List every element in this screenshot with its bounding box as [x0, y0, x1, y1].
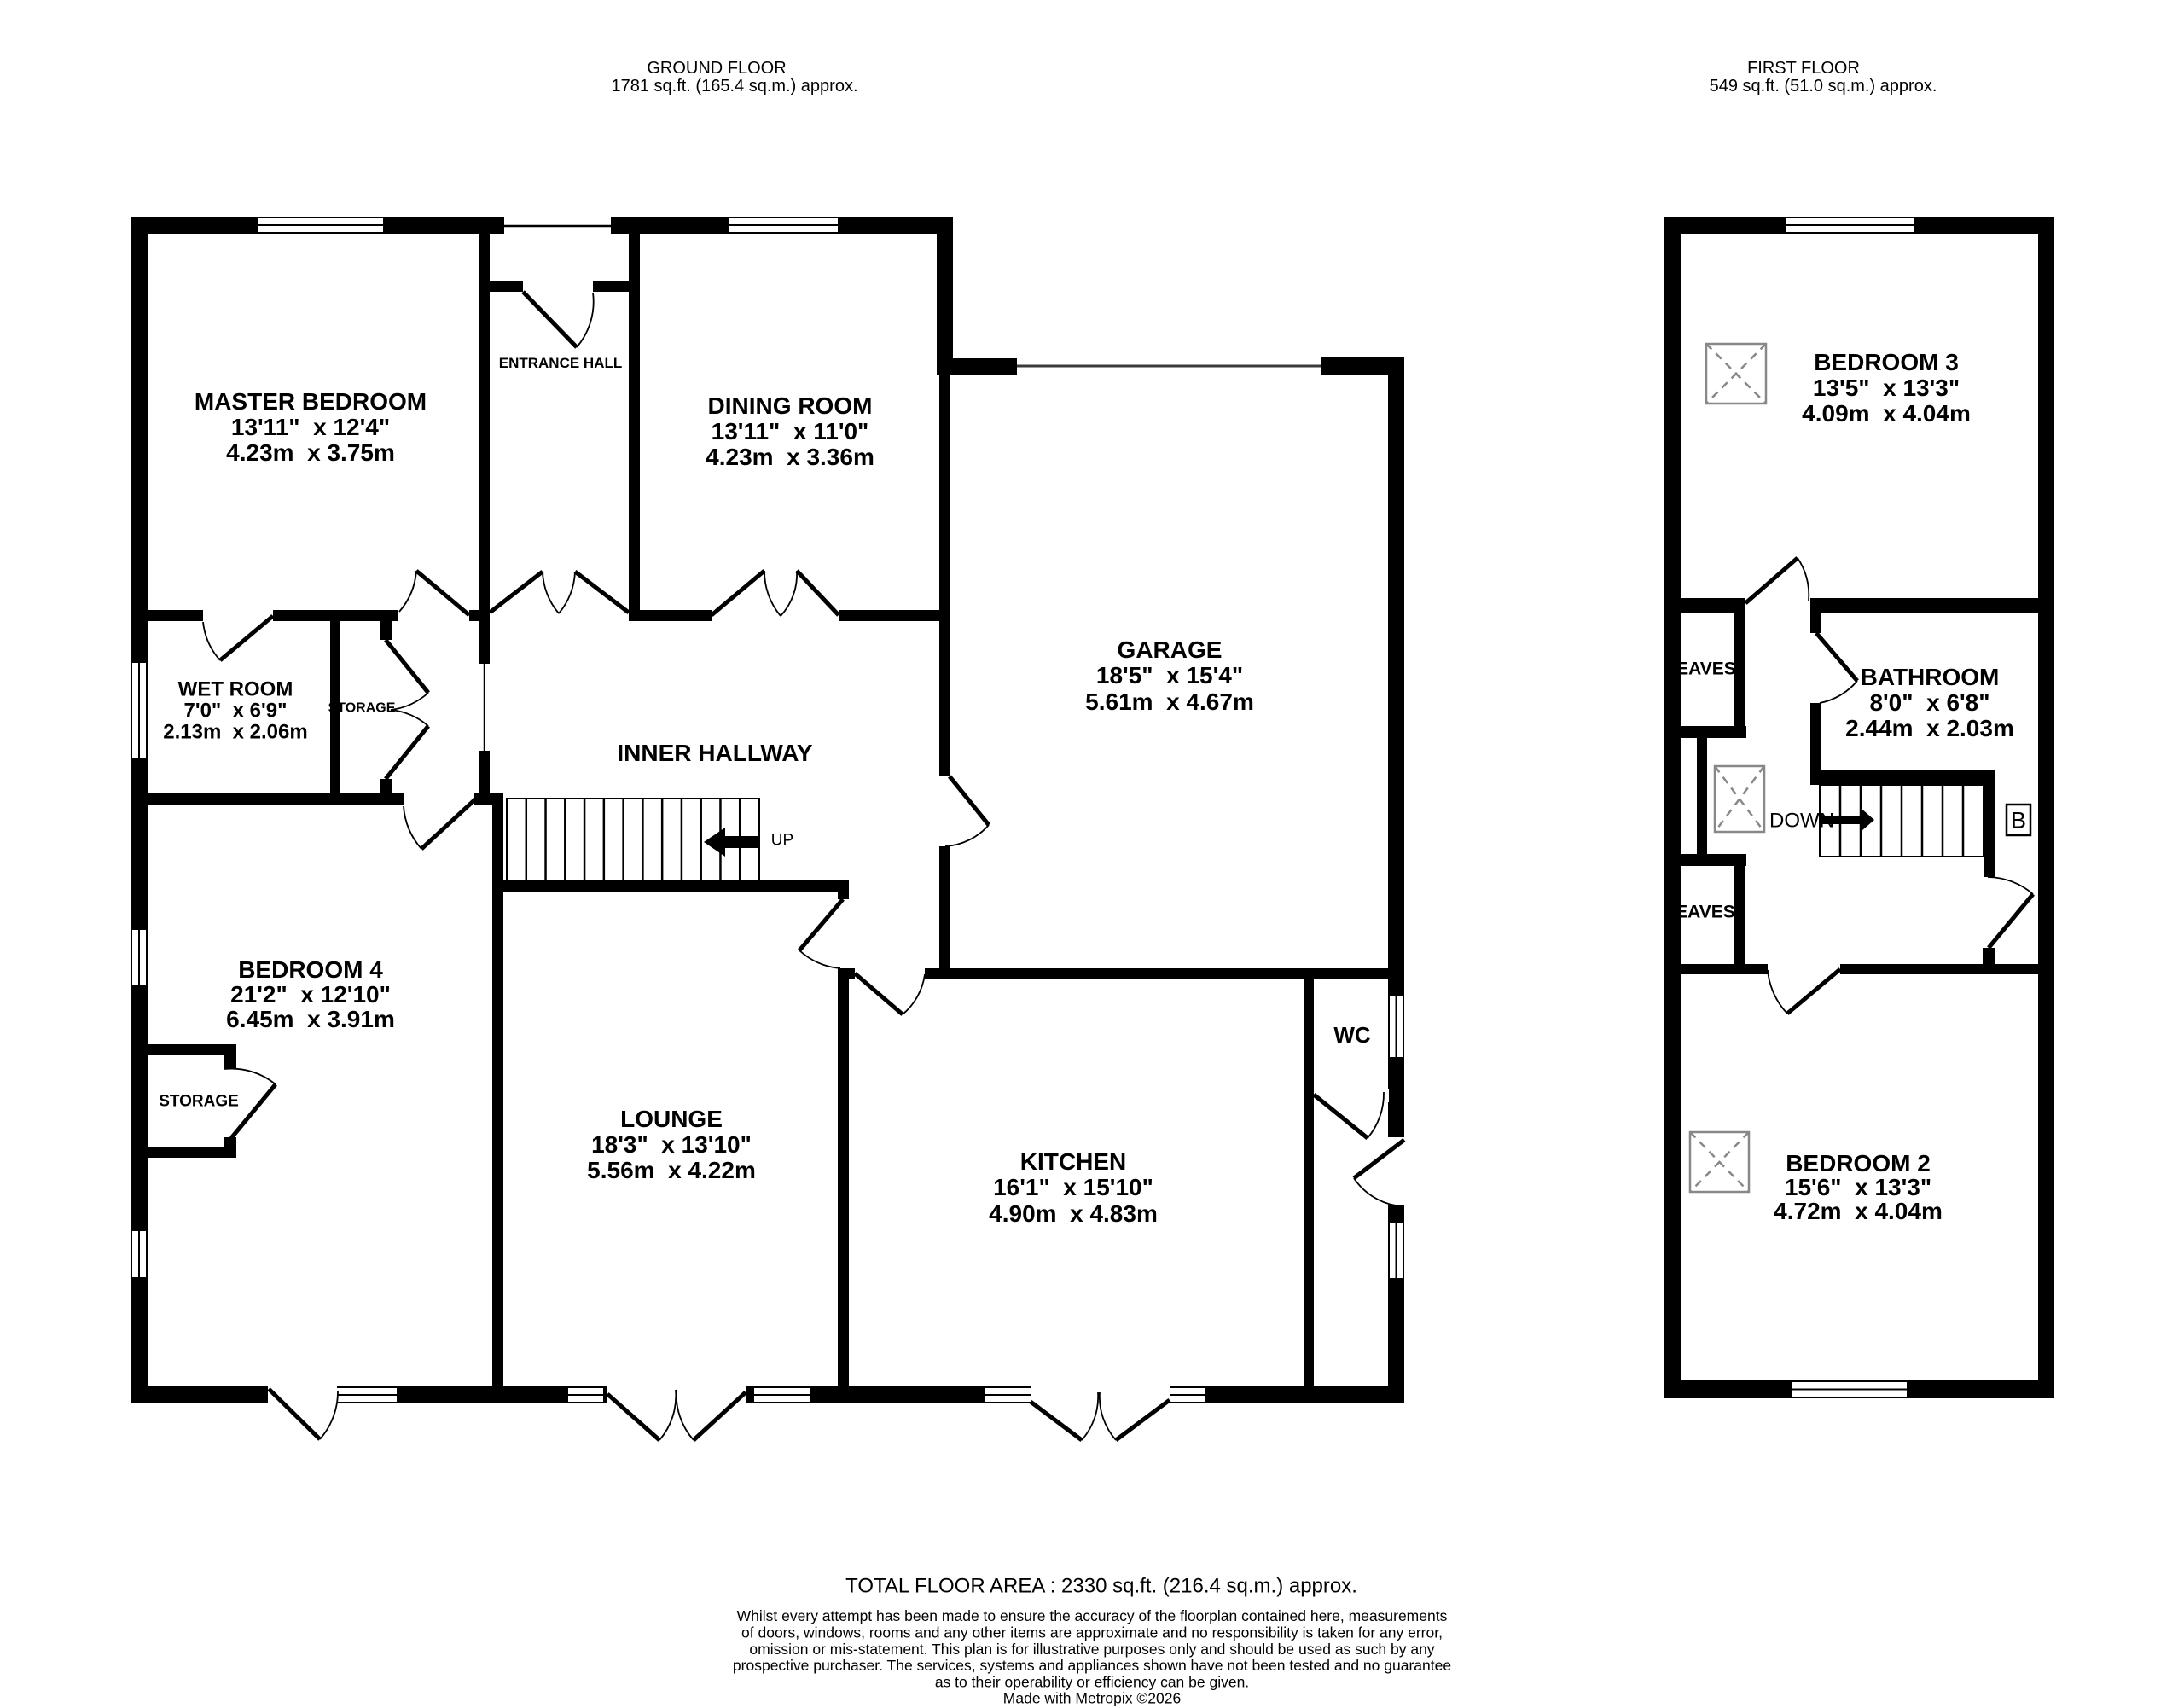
- svg-text:2.13m x 2.06m: 2.13m x 2.06m: [163, 721, 307, 744]
- svg-text:7'0" x 6'9": 7'0" x 6'9": [184, 700, 288, 723]
- svg-text:18'3" x 13'10": 18'3" x 13'10": [591, 1131, 752, 1158]
- svg-text:UP: UP: [771, 832, 793, 850]
- svg-text:EAVES: EAVES: [1676, 902, 1735, 921]
- svg-text:13'11" x 11'0": 13'11" x 11'0": [712, 418, 869, 444]
- svg-text:DINING ROOM: DINING ROOM: [708, 392, 873, 419]
- svg-text:B: B: [2011, 808, 2026, 834]
- svg-text:INNER HALLWAY: INNER HALLWAY: [617, 740, 813, 766]
- svg-text:ENTRANCE HALL: ENTRANCE HALL: [499, 355, 623, 371]
- svg-text:2.44m x 2.03m: 2.44m x 2.03m: [1845, 715, 2014, 741]
- svg-text:TOTAL FLOOR AREA : 2330 sq.ft.: TOTAL FLOOR AREA : 2330 sq.ft. (216.4 sq…: [845, 1575, 1357, 1598]
- svg-text:4.23m x 3.36m: 4.23m x 3.36m: [706, 444, 874, 470]
- svg-text:6.45m x 3.91m: 6.45m x 3.91m: [226, 1006, 395, 1032]
- svg-text:5.61m x 4.67m: 5.61m x 4.67m: [1085, 688, 1254, 715]
- svg-text:prospective purchaser. The ser: prospective purchaser. The services, sys…: [733, 1657, 1451, 1674]
- svg-text:WC: WC: [1333, 1022, 1371, 1048]
- svg-text:8'0" x 6'8": 8'0" x 6'8": [1869, 689, 1989, 716]
- svg-text:EAVES: EAVES: [1676, 659, 1736, 678]
- svg-text:BEDROOM 2: BEDROOM 2: [1786, 1150, 1931, 1176]
- svg-text:WET ROOM: WET ROOM: [178, 678, 293, 701]
- svg-text:549 sq.ft. (51.0 sq.m.) approx: 549 sq.ft. (51.0 sq.m.) approx.: [1710, 77, 1937, 96]
- svg-text:as to their operability or eff: as to their operability or efficiency ca…: [935, 1673, 1249, 1690]
- svg-text:of doors, windows, rooms and a: of doors, windows, rooms and any other i…: [741, 1624, 1443, 1641]
- svg-text:MASTER BEDROOM: MASTER BEDROOM: [195, 388, 427, 415]
- svg-text:Made with Metropix ©2026: Made with Metropix ©2026: [1003, 1690, 1181, 1707]
- svg-text:21'2" x 12'10": 21'2" x 12'10": [230, 981, 391, 1008]
- svg-text:13'5" x 13'3": 13'5" x 13'3": [1813, 375, 1960, 401]
- svg-text:LOUNGE: LOUNGE: [620, 1106, 723, 1132]
- svg-text:15'6" x 13'3": 15'6" x 13'3": [1785, 1174, 1931, 1200]
- svg-text:4.09m x 4.04m: 4.09m x 4.04m: [1802, 400, 1971, 427]
- svg-text:STORAGE: STORAGE: [159, 1093, 239, 1111]
- svg-text:BATHROOM: BATHROOM: [1861, 664, 2000, 690]
- svg-text:18'5" x 15'4": 18'5" x 15'4": [1096, 662, 1243, 688]
- svg-text:4.72m x 4.04m: 4.72m x 4.04m: [1774, 1198, 1943, 1224]
- svg-text:GROUND FLOOR: GROUND FLOOR: [647, 59, 786, 78]
- svg-text:Whilst every attempt has been: Whilst every attempt has been made to en…: [737, 1607, 1448, 1624]
- svg-text:omission or mis-statement. Thi: omission or mis-statement. This plan is …: [749, 1641, 1434, 1658]
- svg-text:BEDROOM 4: BEDROOM 4: [238, 956, 383, 983]
- svg-text:KITCHEN: KITCHEN: [1020, 1148, 1126, 1175]
- svg-text:4.90m x 4.83m: 4.90m x 4.83m: [989, 1200, 1158, 1227]
- svg-text:BEDROOM 3: BEDROOM 3: [1814, 349, 1959, 375]
- svg-text:4.23m x 3.75m: 4.23m x 3.75m: [226, 439, 395, 466]
- svg-text:13'11" x 12'4": 13'11" x 12'4": [231, 414, 390, 440]
- svg-text:1781 sq.ft. (165.4 sq.m.) appr: 1781 sq.ft. (165.4 sq.m.) approx.: [611, 77, 857, 96]
- svg-text:GARAGE: GARAGE: [1118, 636, 1223, 663]
- svg-text:5.56m x 4.22m: 5.56m x 4.22m: [587, 1157, 756, 1183]
- svg-text:16'1" x 15'10": 16'1" x 15'10": [993, 1174, 1153, 1200]
- svg-text:FIRST FLOOR: FIRST FLOOR: [1747, 59, 1860, 78]
